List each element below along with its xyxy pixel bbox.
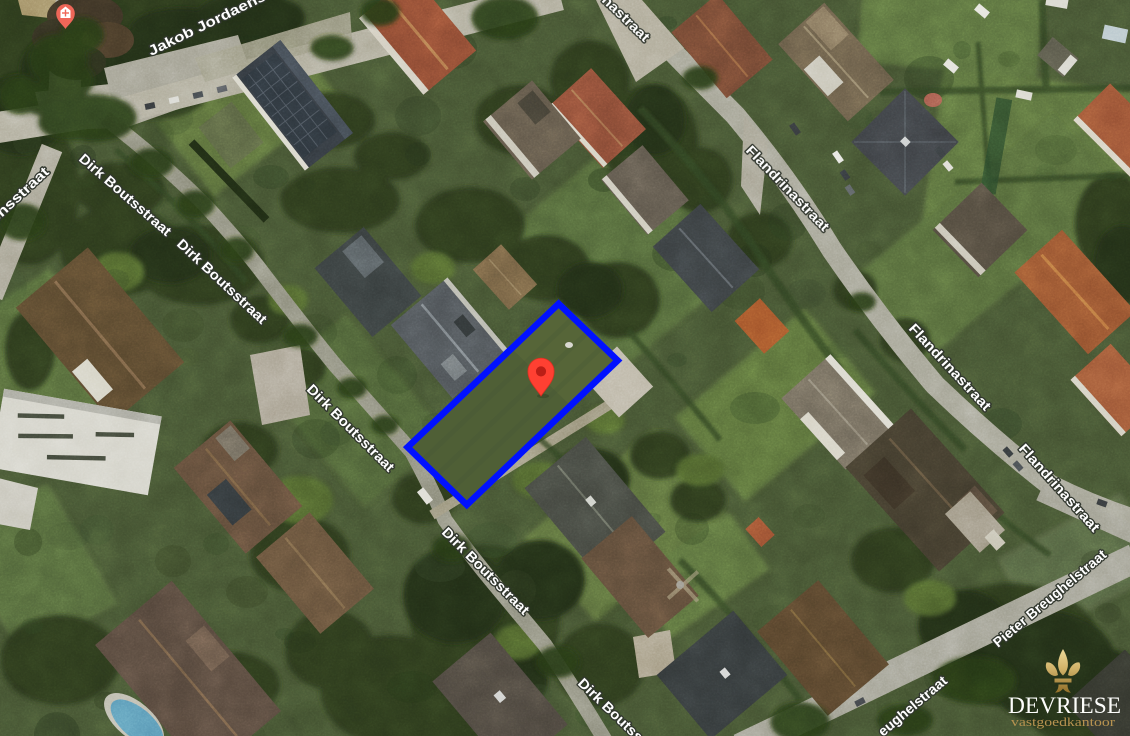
svg-text:vastgoedkantoor: vastgoedkantoor <box>1011 714 1116 729</box>
